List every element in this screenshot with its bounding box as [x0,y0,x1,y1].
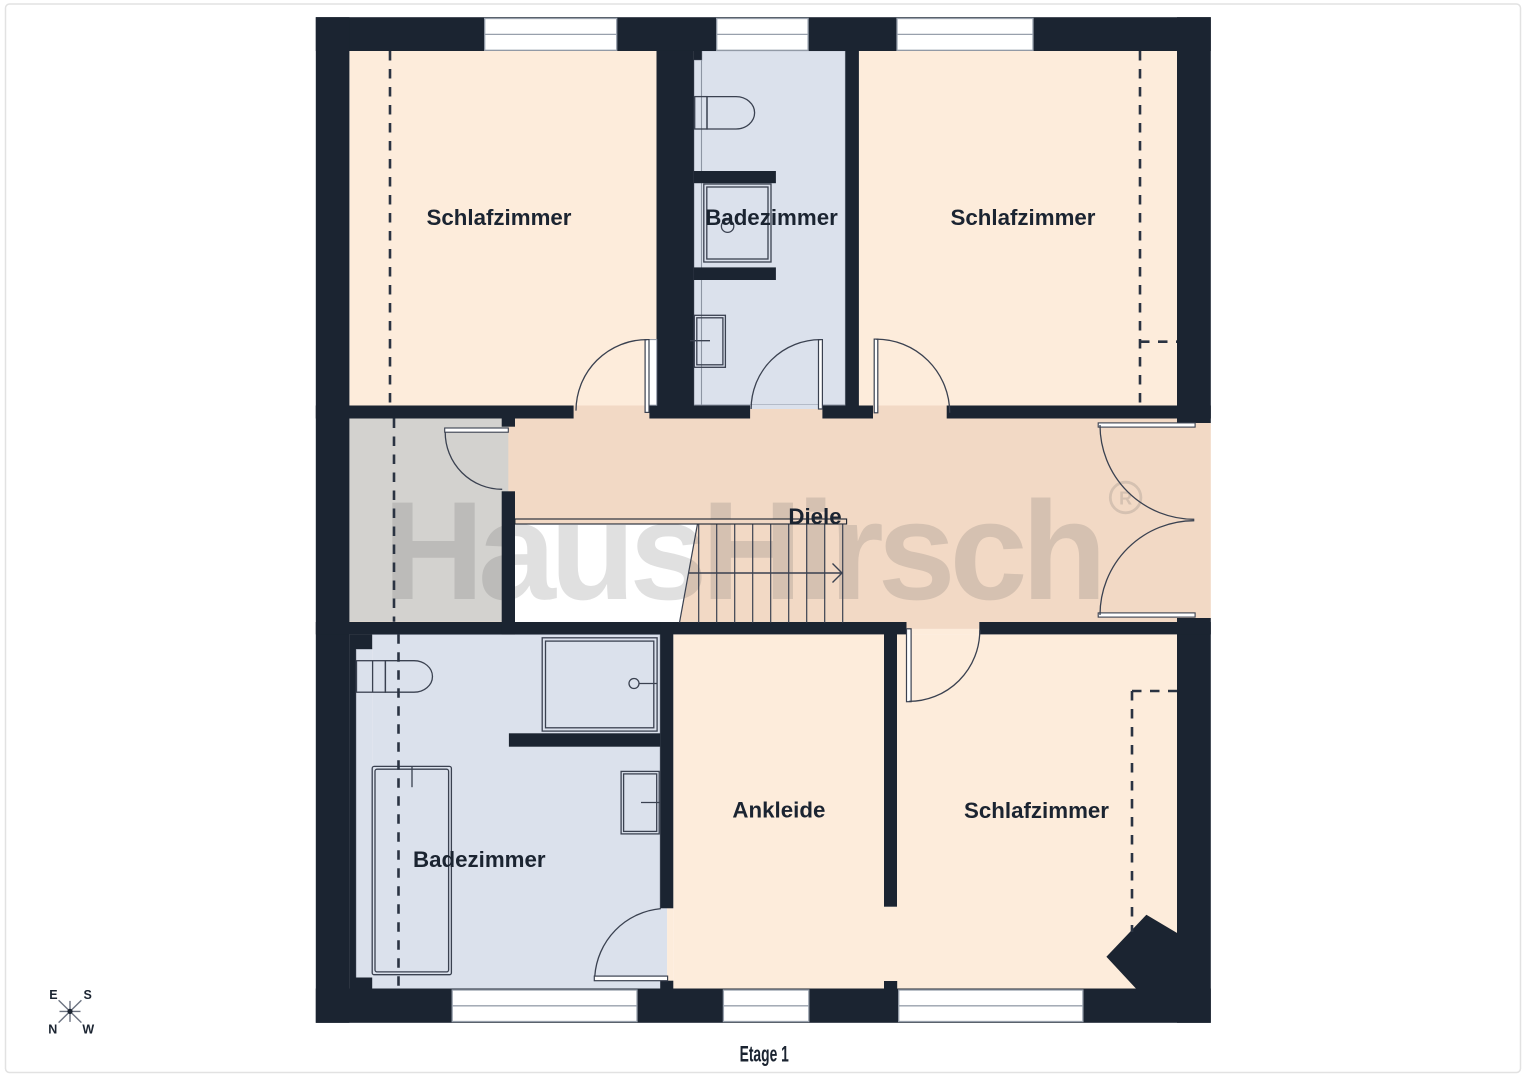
svg-text:Badezimmer: Badezimmer [705,205,838,230]
svg-text:R: R [1119,489,1132,509]
svg-text:HausHirsch: HausHirsch [383,472,1107,629]
svg-text:Etage 1: Etage 1 [740,1042,789,1067]
svg-text:N: N [48,1022,57,1036]
svg-text:W: W [82,1022,94,1036]
svg-text:S: S [84,988,92,1002]
svg-text:Schlafzimmer: Schlafzimmer [427,205,572,230]
svg-text:Schlafzimmer: Schlafzimmer [964,798,1109,823]
svg-text:Diele: Diele [788,504,841,529]
svg-text:Schlafzimmer: Schlafzimmer [951,205,1096,230]
svg-text:E: E [49,988,57,1002]
svg-text:Ankleide: Ankleide [732,798,825,823]
svg-text:Badezimmer: Badezimmer [413,847,546,872]
